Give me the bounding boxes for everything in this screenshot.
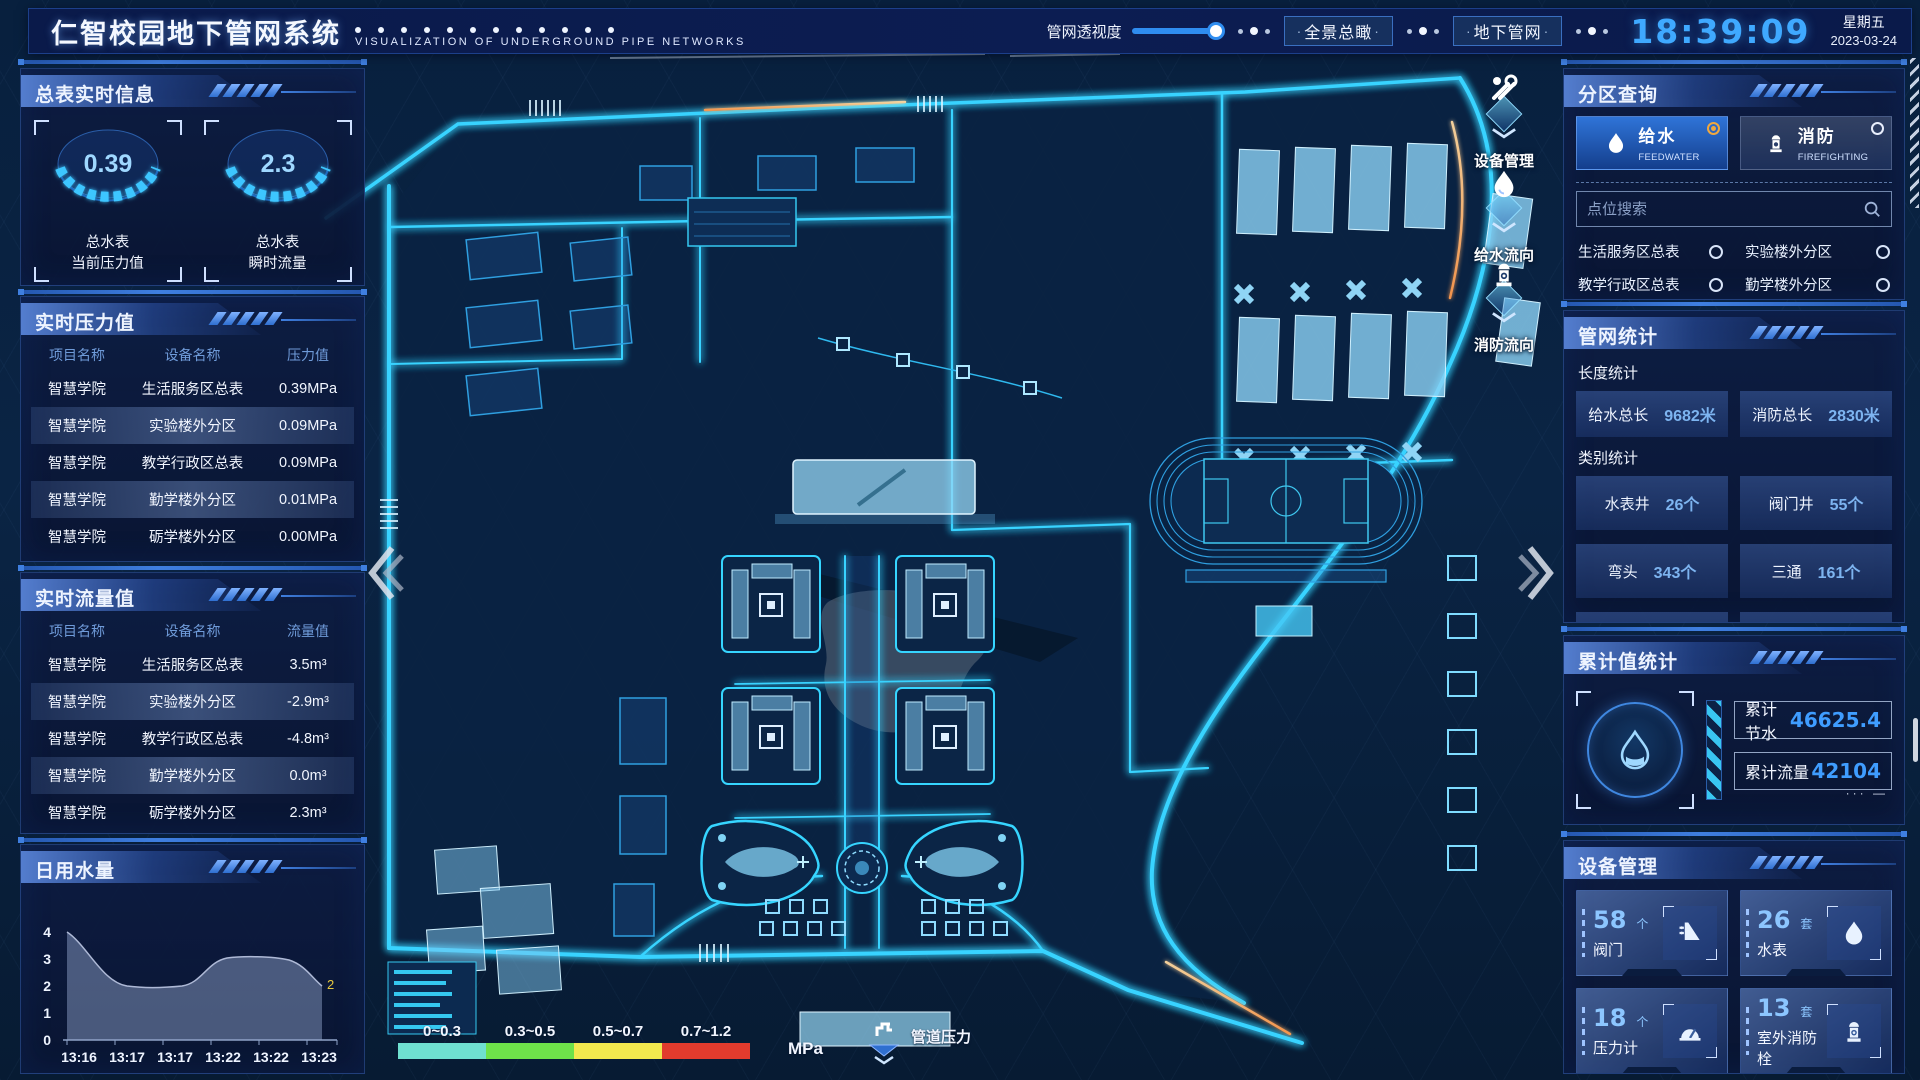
cumulative-row: 累计节水46625.4 [1734,701,1892,739]
device-card-valve[interactable]: 58个 阀门 [1576,890,1728,976]
pressure-gauge-icon [1676,1017,1704,1045]
table-row: 智慧学院教学行政区总表0.09MPa [31,444,354,481]
edge-hatch-decor [1910,58,1919,208]
device-card-watermeter[interactable]: 26套 水表 [1740,890,1892,976]
panel-title: 总表实时信息 [21,72,364,107]
hazard-stripe-decor [1706,700,1722,800]
map-tool-device[interactable]: 设备管理 [1456,70,1552,171]
flow-panel: 实时流量值 项目名称设备名称流量值 智慧学院生活服务区总表3.5m³ 智慧学院实… [20,572,365,834]
clock: 18:39:09 [1630,12,1810,51]
legend-swatch [486,1043,574,1059]
gauge-arc: 0.39 [42,120,174,220]
table-row: 智慧学院砺学楼外分区0.00MPa [31,518,354,555]
zone-option[interactable]: 生活服务区总表 [1578,235,1723,268]
dots-decor [1238,27,1270,35]
flow-table: 项目名称设备名称流量值 智慧学院生活服务区总表3.5m³ 智慧学院实验楼外分区-… [21,614,364,831]
gauge-label: 总水表 [71,233,144,253]
svg-text:1: 1 [43,1005,51,1021]
pool [1256,606,1312,636]
pressure-panel: 实时压力值 项目名称设备名称压力值 智慧学院生活服务区总表0.39MPa 智慧学… [20,296,365,562]
pipe-pressure-icon [867,1020,901,1065]
zone-option[interactable]: 勤学楼外分区 [1745,268,1890,300]
svg-text:0: 0 [43,1032,51,1048]
table-row: 智慧学院生活服务区总表0.39MPa [31,370,354,407]
panel-title: 实时流量值 [21,576,364,611]
length-stats-label: 长度统计 [1564,352,1904,391]
dots-decor: ··· — [1734,786,1892,800]
brand: 仁智校园地下管网系统 VISUALIZATION OF UNDERGROUND … [29,12,746,51]
gauge-arc: 2.3 [212,120,344,220]
map-tool-fire-flow[interactable]: 消防流向 [1456,258,1552,355]
svg-text:2: 2 [43,978,51,994]
wrench-icon [1486,70,1522,106]
slider-track[interactable] [1132,28,1224,34]
stat-box: 弯头343个 [1576,544,1728,598]
svg-text:13:22: 13:22 [205,1049,241,1065]
gauge-pressure: 0.39 总水表 当前压力值 [34,120,182,282]
court-rooms [1448,556,1476,870]
radio-icon[interactable] [1876,278,1890,292]
stat-box: 水表井26个 [1576,476,1728,530]
svg-text:13:16: 13:16 [61,1049,97,1065]
svg-text:13:17: 13:17 [157,1049,193,1065]
svg-text:4: 4 [43,924,51,940]
valve-icon [1676,919,1704,947]
legend-unit: MPa [788,1039,823,1059]
table-row: 智慧学院教学行政区总表-4.8m³ [31,720,354,757]
search-icon [1863,200,1881,218]
radio-unselected[interactable] [1871,122,1884,135]
app-title: 仁智校园地下管网系统 [51,12,341,51]
gauge-label: 总水表 [249,233,307,253]
map-tool-label: 消防流向 [1456,334,1552,355]
date: 2023-03-24 [1831,32,1898,50]
meter-info-panel: 总表实时信息 0.39 总水表 当前压力值 2.3 总水表 瞬时流量 [20,68,365,286]
library-building [775,460,995,524]
svg-text:2: 2 [327,977,334,992]
daily-usage-chart: 4 3 2 1 0 2 13:16 13:17 13:17 13:22 13:2… [21,886,364,1074]
panel-title: 分区查询 [1564,72,1904,107]
water-drop-icon [1488,168,1520,200]
stat-box-clipped [1576,612,1728,623]
stat-box: 消防总长2830米 [1740,391,1892,437]
gauge-flow: 2.3 总水表 瞬时流量 [204,120,352,282]
zone-option[interactable]: 教学行政区总表 [1578,268,1723,300]
device-mgmt-panel: 设备管理 58个 阀门 26套 水表 18个 压力计 [1563,840,1905,1074]
radio-icon[interactable] [1876,245,1890,259]
device-card-pressure-gauge[interactable]: 18个 压力计 [1576,988,1728,1074]
map-tool-feedwater-flow[interactable]: 给水流向 [1456,168,1552,265]
radio-icon[interactable] [1709,245,1723,259]
panel-title: 实时压力值 [21,300,364,335]
water-badge [1576,691,1694,809]
network-stats-panel: 管网统计 长度统计 给水总长9682米 消防总长2830米 类别统计 水表井26… [1563,310,1905,623]
cumulative-panel: 累计值统计 累计节水46625.4 累计流量42104 ··· — [1563,635,1905,825]
category-stats-label: 类别统计 [1564,437,1904,476]
stat-box: 三通161个 [1740,544,1892,598]
daily-usage-panel: 日用水量 4 3 2 1 0 2 13:16 13:17 13:17 13:22… [20,844,365,1074]
svg-text:0.39: 0.39 [83,150,132,178]
legend-swatch [398,1043,486,1059]
panel-title: 管网统计 [1564,314,1904,349]
pressure-table: 项目名称设备名称压力值 智慧学院生活服务区总表0.39MPa 智慧学院实验楼外分… [21,338,364,555]
table-row: 智慧学院生活服务区总表3.5m³ [31,646,354,683]
divider [1576,182,1892,183]
zone-query-panel: 分区查询 给水FEEDWATER 消防FIREFIGHTING 生活服务区总表 … [1563,68,1905,300]
device-card-hydrant[interactable]: 13套 室外消防栓 [1740,988,1892,1074]
table-row: 智慧学院勤学楼外分区0.0m³ [31,757,354,794]
panel-title: 设备管理 [1564,844,1904,879]
gauge-label: 当前压力值 [71,254,144,274]
water-drop-icon [1613,728,1657,772]
svg-text:13:23: 13:23 [301,1049,337,1065]
slider-knob[interactable] [1207,22,1225,40]
date-block: 星期五 2023-03-24 [1831,13,1898,49]
stat-box-clipped [1740,612,1892,623]
water-drop-icon [1604,131,1628,155]
app-header: 仁智校园地下管网系统 VISUALIZATION OF UNDERGROUND … [28,8,1912,54]
underground-button[interactable]: 地下管网 [1453,16,1562,46]
pipe-opacity-slider[interactable]: 管网透视度 [1047,21,1224,42]
cumulative-row: 累计流量42104 [1734,752,1892,790]
radio-icon[interactable] [1709,278,1723,292]
svg-text:13:17: 13:17 [109,1049,145,1065]
table-row: 智慧学院勤学楼外分区0.01MPa [31,481,354,518]
panel-title: 累计值统计 [1564,639,1904,674]
light-beams [610,54,1120,58]
svg-text:2.3: 2.3 [260,150,295,178]
weekday: 星期五 [1831,13,1898,32]
gauge-label: 瞬时流量 [249,254,307,274]
legend-swatch [574,1043,662,1059]
hydrant-icon [1764,131,1788,155]
dots-decor [1407,27,1439,35]
firefighting-button[interactable]: 消防FIREFIGHTING [1740,116,1892,170]
dots-decor [1576,27,1608,35]
stat-box: 给水总长9682米 [1576,391,1728,437]
panel-title: 日用水量 [21,848,364,883]
assembly-hall [688,198,796,246]
title-dots [355,27,746,33]
table-row: 智慧学院实验楼外分区-2.9m³ [31,683,354,720]
stat-box: 阀门井55个 [1740,476,1892,530]
radio-selected[interactable] [1707,122,1720,135]
zone-option[interactable]: 实验楼外分区 [1745,235,1890,268]
page-scrollbar[interactable] [1913,718,1918,762]
water-meter-icon [1840,919,1868,947]
app-subtitle: VISUALIZATION OF UNDERGROUND PIPE NETWOR… [355,36,746,48]
map-next-arrow[interactable] [1516,542,1560,604]
svg-text:13:22: 13:22 [253,1049,289,1065]
table-row: 智慧学院砺学楼外分区2.3m³ [31,794,354,831]
svg-text:3: 3 [43,951,51,967]
point-search[interactable] [1576,191,1892,227]
pressure-legend: 0~0.3 0.3~0.5 0.5~0.7 0.7~1.2 MPa 管道压力 [398,1014,971,1059]
feedwater-button[interactable]: 给水FEEDWATER [1576,116,1728,170]
legend-swatch [662,1043,750,1059]
zone-options: 生活服务区总表 实验楼外分区 教学行政区总表 勤学楼外分区 砺学楼外分区 宿舍区… [1564,233,1904,300]
legend-label: 管道压力 [911,1026,971,1047]
search-input[interactable] [1587,201,1863,218]
table-row: 智慧学院实验楼外分区0.09MPa [31,407,354,444]
map-prev-arrow[interactable] [362,542,406,604]
overview-button[interactable]: 全景总瞰 [1284,16,1393,46]
hydrant-icon [1488,258,1520,290]
hydrant-icon [1840,1017,1868,1045]
slider-label: 管网透视度 [1047,21,1122,42]
